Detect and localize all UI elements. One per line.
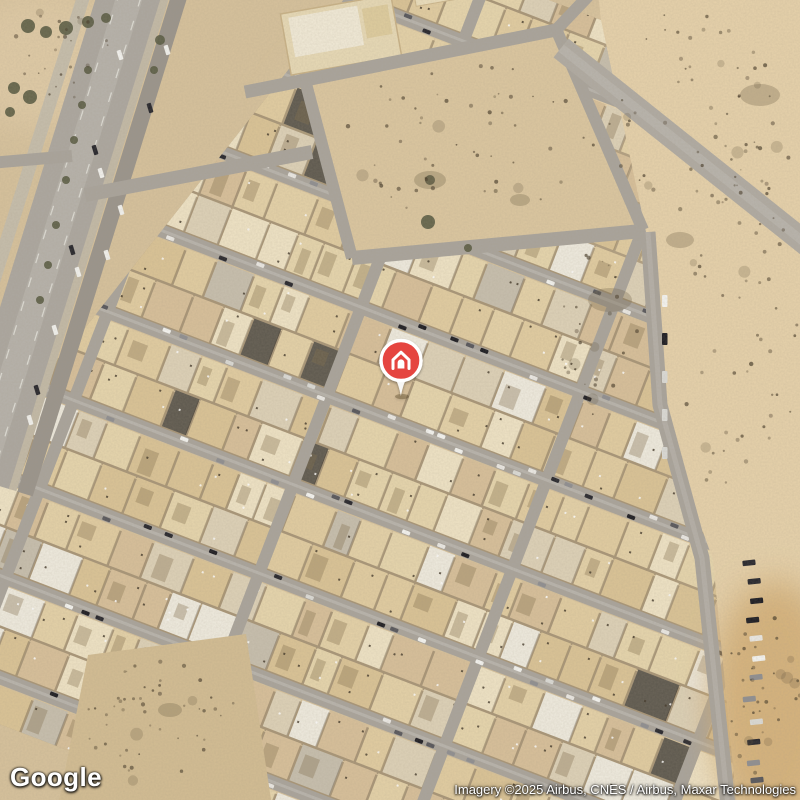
google-logo[interactable]: Google xyxy=(10,762,102,793)
imagery-attribution: Imagery ©2025 Airbus, CNES / Airbus, Max… xyxy=(454,782,796,797)
imagery-grain-overlay xyxy=(0,0,800,800)
satellite-imagery[interactable] xyxy=(0,0,800,800)
pin-ground-shadow xyxy=(395,394,409,399)
satellite-map-view[interactable]: Google Imagery ©2025 Airbus, CNES / Airb… xyxy=(0,0,800,800)
